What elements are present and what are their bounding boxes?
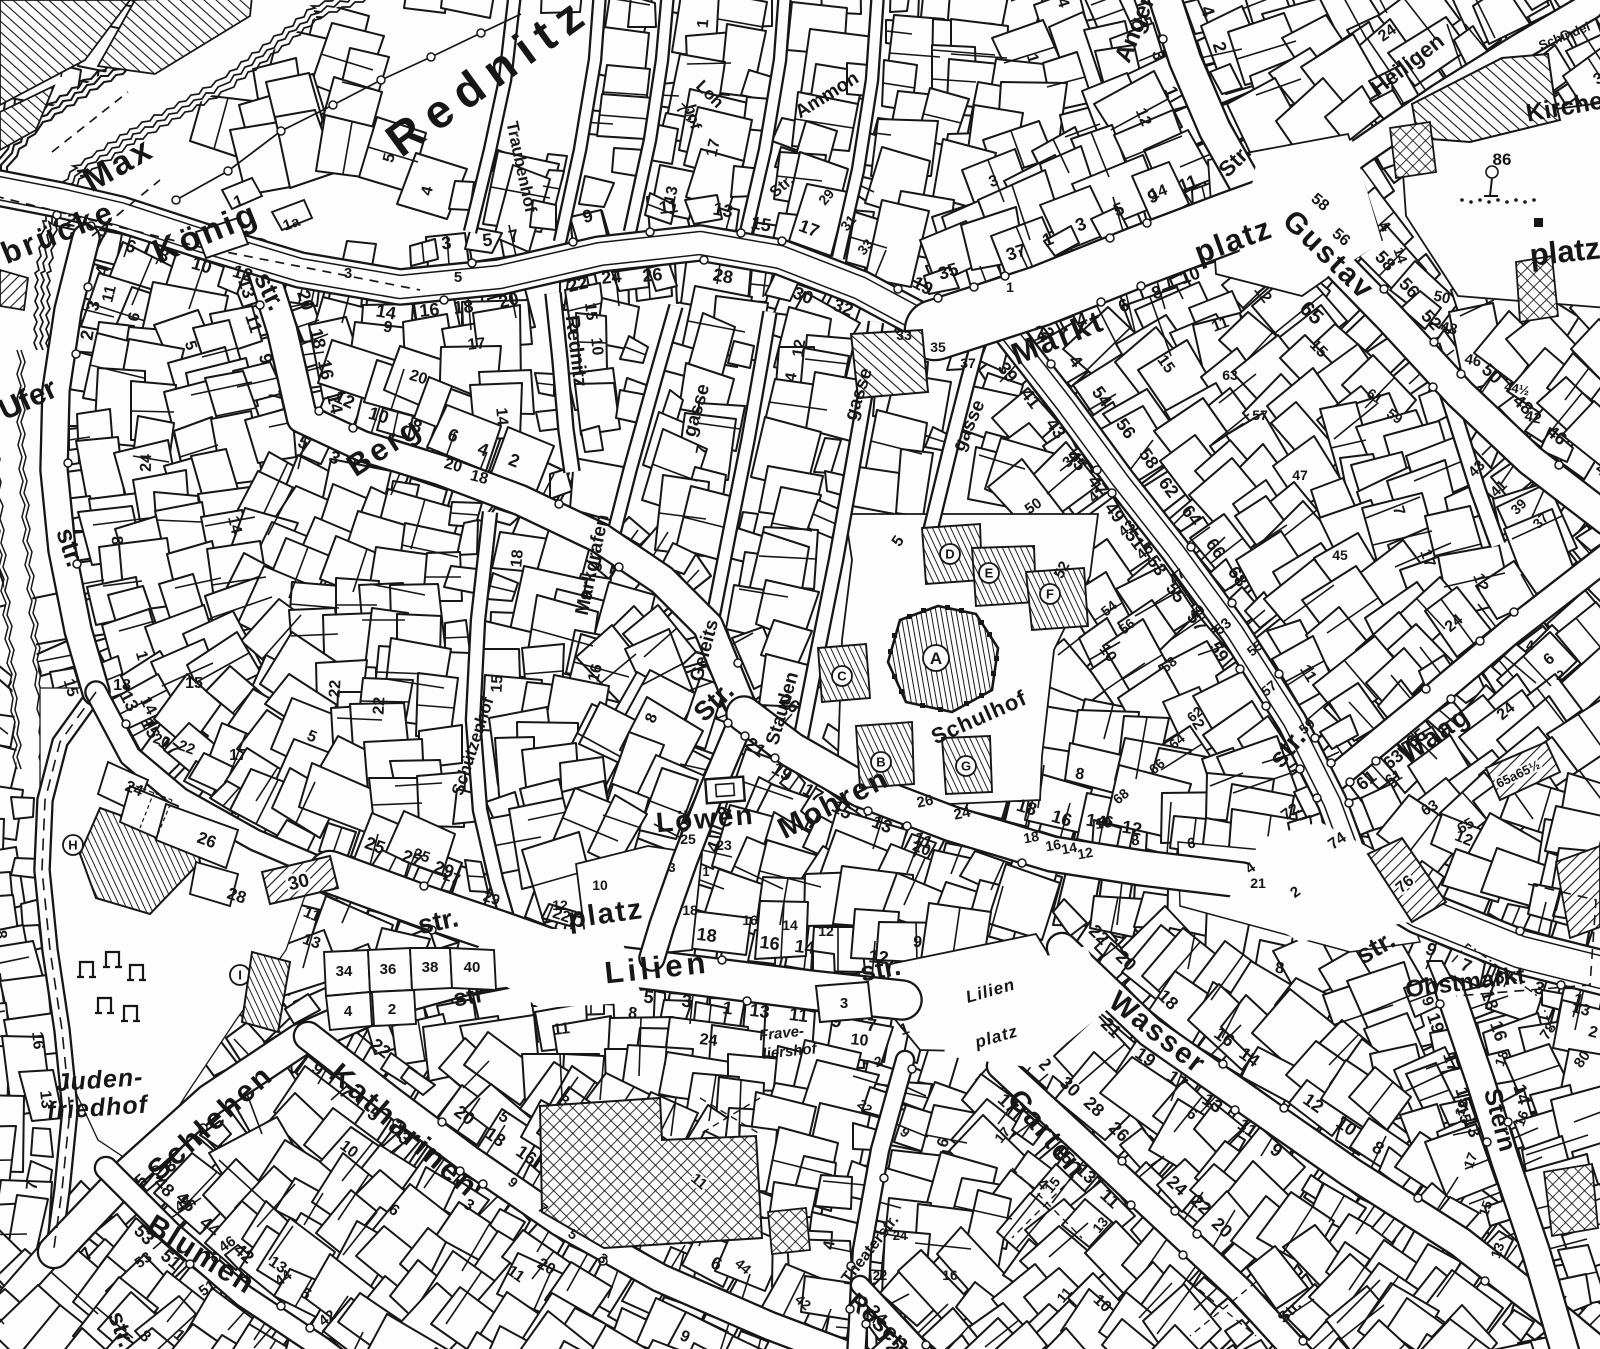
svg-text:22: 22 [327, 679, 345, 698]
svg-text:57: 57 [1252, 407, 1268, 423]
svg-text:17: 17 [229, 747, 247, 764]
svg-text:24: 24 [138, 454, 155, 472]
svg-text:7: 7 [24, 1180, 42, 1191]
svg-text:10: 10 [592, 877, 608, 893]
svg-text:I: I [238, 968, 242, 983]
svg-text:24: 24 [699, 1031, 719, 1050]
svg-text:str: str [451, 981, 486, 1013]
svg-text:1: 1 [695, 18, 713, 28]
svg-text:38: 38 [422, 959, 439, 976]
svg-text:16: 16 [418, 299, 440, 321]
svg-text:10: 10 [1094, 814, 1113, 833]
svg-text:45: 45 [1332, 547, 1348, 563]
svg-text:11: 11 [552, 1020, 571, 1039]
svg-text:13: 13 [749, 1000, 771, 1022]
svg-text:2: 2 [1556, 667, 1564, 683]
svg-text:13: 13 [661, 184, 681, 205]
svg-text:21: 21 [1250, 875, 1266, 891]
svg-text:H: H [68, 838, 77, 853]
svg-text:12: 12 [1076, 844, 1094, 862]
svg-text:16: 16 [1044, 836, 1062, 854]
svg-text:23: 23 [716, 837, 732, 853]
svg-text:G: G [961, 759, 971, 774]
svg-text:18: 18 [113, 677, 131, 694]
svg-text:3: 3 [440, 233, 452, 254]
svg-text:2: 2 [388, 1001, 396, 1018]
svg-text:4: 4 [344, 1003, 353, 1020]
svg-text:D: D [945, 547, 954, 562]
svg-text:18: 18 [696, 924, 718, 946]
svg-text:24: 24 [893, 1228, 908, 1243]
svg-text:platz: platz [1528, 230, 1600, 272]
svg-text:18: 18 [452, 296, 474, 318]
svg-text:35: 35 [930, 339, 946, 355]
svg-text:18: 18 [1022, 828, 1040, 846]
svg-text:A: A [930, 649, 942, 668]
svg-text:14: 14 [782, 917, 798, 933]
svg-text:50: 50 [1432, 288, 1452, 308]
svg-text:13: 13 [711, 199, 734, 222]
svg-text:E: E [985, 566, 994, 581]
svg-text:16: 16 [942, 1267, 958, 1283]
svg-text:1: 1 [1006, 279, 1014, 295]
svg-text:F: F [1046, 587, 1054, 602]
svg-text:86: 86 [1493, 150, 1512, 169]
svg-text:3: 3 [668, 860, 675, 875]
svg-text:24: 24 [600, 266, 622, 288]
svg-text:63: 63 [1222, 367, 1238, 383]
svg-text:16: 16 [759, 932, 781, 954]
svg-text:34: 34 [336, 963, 353, 980]
svg-text:33: 33 [896, 327, 912, 343]
svg-text:40: 40 [464, 959, 481, 976]
svg-text:18: 18 [508, 549, 527, 569]
svg-text:22: 22 [873, 1268, 887, 1283]
svg-text:1: 1 [702, 864, 709, 879]
svg-text:10: 10 [850, 1031, 870, 1050]
svg-text:26: 26 [641, 264, 663, 286]
svg-text:22: 22 [371, 696, 389, 715]
svg-text:46: 46 [1463, 351, 1483, 371]
svg-text:10: 10 [587, 337, 606, 357]
svg-text:C: C [837, 669, 847, 684]
svg-text:16: 16 [28, 1031, 47, 1051]
svg-text:17: 17 [467, 335, 487, 354]
svg-text:9: 9 [912, 934, 923, 952]
svg-text:18: 18 [682, 902, 698, 918]
svg-text:36: 36 [380, 961, 397, 978]
svg-text:8: 8 [108, 535, 126, 546]
svg-text:5: 5 [481, 230, 493, 251]
svg-text:3: 3 [840, 995, 848, 1012]
svg-text:26: 26 [915, 792, 935, 812]
svg-text:16: 16 [742, 912, 758, 928]
svg-text:48: 48 [1439, 319, 1459, 339]
svg-text:15: 15 [489, 674, 507, 693]
svg-text:3: 3 [344, 265, 352, 282]
svg-text:37: 37 [960, 355, 976, 371]
svg-text:14: 14 [492, 407, 510, 426]
svg-text:25: 25 [680, 831, 696, 847]
svg-text:28: 28 [711, 265, 734, 288]
svg-text:42: 42 [1523, 408, 1543, 428]
svg-text:15: 15 [185, 675, 203, 692]
svg-text:14: 14 [794, 936, 816, 958]
svg-text:12: 12 [818, 923, 834, 939]
svg-text:5: 5 [454, 269, 462, 286]
svg-text:4: 4 [1526, 637, 1534, 653]
svg-text:47: 47 [1292, 467, 1308, 483]
svg-text:12: 12 [790, 338, 810, 358]
svg-text:15: 15 [749, 213, 772, 236]
svg-text:12: 12 [552, 897, 568, 913]
